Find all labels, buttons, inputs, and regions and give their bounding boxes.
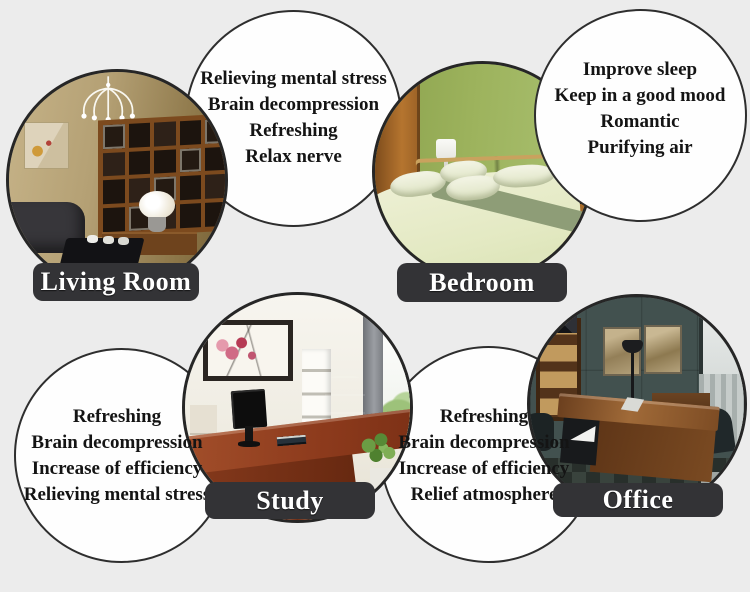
benefit-line: Relieving mental stress — [8, 482, 226, 508]
benefit-line: Brain decompression — [8, 430, 226, 456]
benefit-line: Refreshing — [183, 118, 404, 144]
benefit-line: Relieving mental stress — [183, 66, 404, 92]
benefit-line: Improve sleep — [528, 57, 750, 83]
vase — [148, 217, 165, 232]
flower-painting — [203, 320, 293, 381]
room-benefits-infographic: Relieving mental stress Brain decompress… — [0, 0, 750, 592]
benefit-line: Refreshing — [8, 404, 226, 430]
benefit-list-bedroom: Improve sleep Keep in a good mood Romant… — [528, 57, 750, 161]
monitor-base — [238, 441, 261, 447]
white-flowers — [139, 191, 176, 219]
benefit-list-living-room: Relieving mental stress Brain decompress… — [183, 66, 404, 170]
benefit-line: Keep in a good mood — [528, 83, 750, 109]
benefit-line: Brain decompression — [183, 92, 404, 118]
monitor — [231, 388, 267, 429]
benefit-line: Relax nerve — [183, 144, 404, 170]
benefit-line: Increase of efficiency — [8, 456, 226, 482]
shelf-decor — [541, 306, 577, 334]
benefit-line: Romantic — [528, 109, 750, 135]
wall-art — [646, 327, 680, 372]
benefit-line: Purifying air — [528, 135, 750, 161]
cups — [87, 235, 98, 243]
benefit-line: Brain decompression — [374, 430, 594, 456]
room-label-office: Office — [553, 483, 723, 517]
benefit-line: Refreshing — [374, 404, 594, 430]
benefit-line: Increase of efficiency — [374, 456, 594, 482]
room-label-bedroom: Bedroom — [397, 263, 567, 302]
benefit-list-study: Refreshing Brain decompression Increase … — [8, 404, 226, 508]
room-label-living-room: Living Room — [33, 263, 199, 301]
wall-art — [24, 122, 69, 170]
room-label-study: Study — [205, 482, 375, 519]
